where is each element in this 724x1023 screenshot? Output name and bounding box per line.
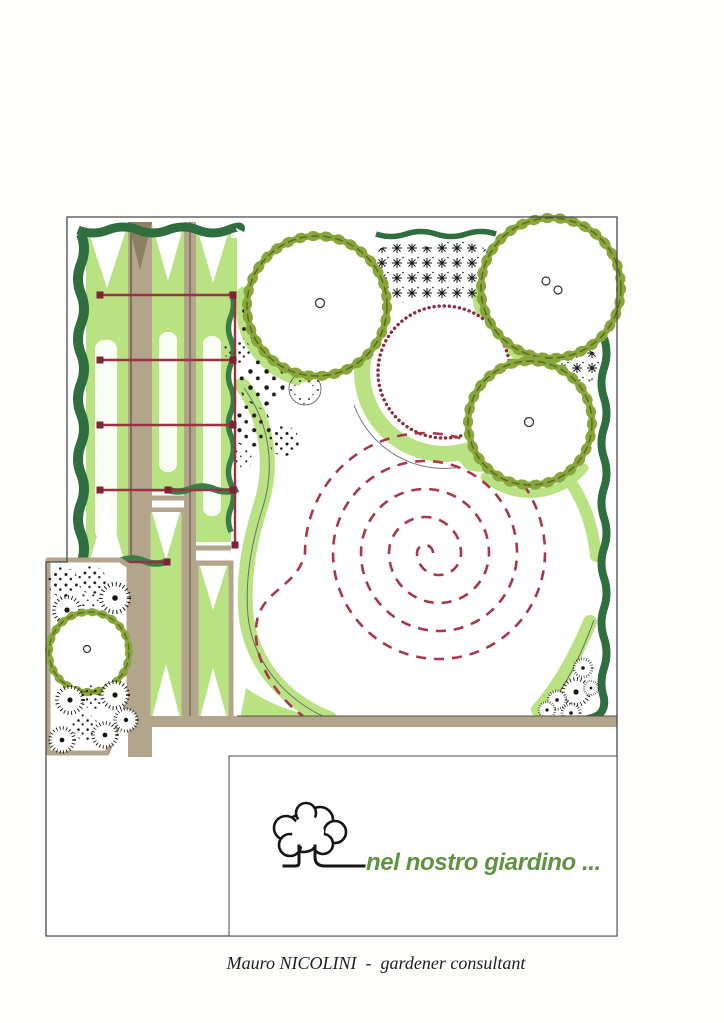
scalloped-tree-top-right bbox=[481, 218, 621, 358]
lower-left-shrub-bed bbox=[48, 560, 137, 753]
bottom-tan-path bbox=[140, 716, 617, 727]
footer-credit: Mauro NICOLINI - gardener consultant bbox=[14, 953, 724, 974]
scalloped-tree-right bbox=[468, 361, 592, 485]
scalloped-tree-top-left bbox=[247, 236, 387, 376]
logo-text: nel nostro giardino ... bbox=[366, 849, 601, 877]
garden-plan-drawing bbox=[0, 0, 724, 1023]
scalloped-tree-lower-left bbox=[49, 612, 129, 692]
scanned-garden-plan-page: nel nostro giardino ... Mauro NICOLINI -… bbox=[0, 0, 724, 1023]
